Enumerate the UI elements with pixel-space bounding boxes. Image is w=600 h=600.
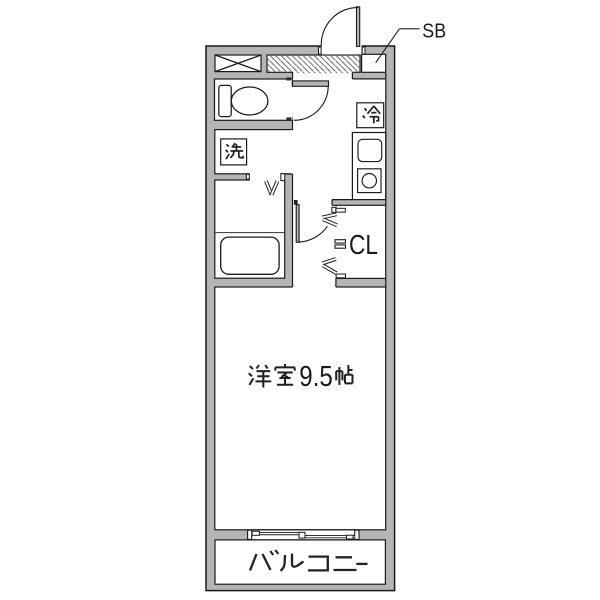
- svg-text:9.5: 9.5: [299, 361, 333, 393]
- svg-text:CL: CL: [349, 229, 378, 260]
- svg-text:SB: SB: [422, 20, 446, 43]
